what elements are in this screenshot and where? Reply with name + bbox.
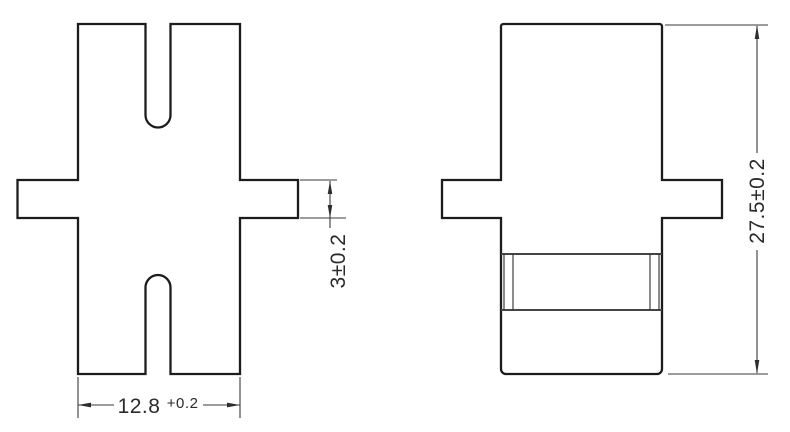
technical-drawing: 12.8 +0.2 3±0.2 27.5±0.2 (0, 0, 790, 432)
side-view-latch-band (501, 254, 662, 310)
front-view-outline (18, 24, 299, 374)
side-view-outline (442, 24, 722, 374)
flange-thickness-label: 3±0.2 (327, 234, 350, 289)
side-view (442, 24, 722, 374)
height-arrow-down (755, 360, 760, 374)
height-arrow-up (755, 25, 760, 39)
width-arrow-right (227, 403, 240, 408)
width-dimension-label: 12.8 +0.2 (118, 395, 199, 418)
drawing-canvas: 12.8 +0.2 3±0.2 27.5±0.2 (0, 0, 790, 432)
flange-arrow-down (328, 205, 333, 218)
width-dimension: 12.8 +0.2 (78, 377, 240, 418)
width-value: 12.8 (118, 395, 161, 418)
height-dimension: 27.5±0.2 (665, 25, 769, 374)
width-arrow-left (78, 403, 91, 408)
height-dimension-label: 27.5±0.2 (746, 158, 769, 244)
front-view (18, 24, 299, 374)
flange-arrow-up (328, 181, 333, 194)
flange-thickness-dimension: 3±0.2 (300, 180, 350, 288)
width-tolerance: +0.2 (167, 395, 199, 412)
